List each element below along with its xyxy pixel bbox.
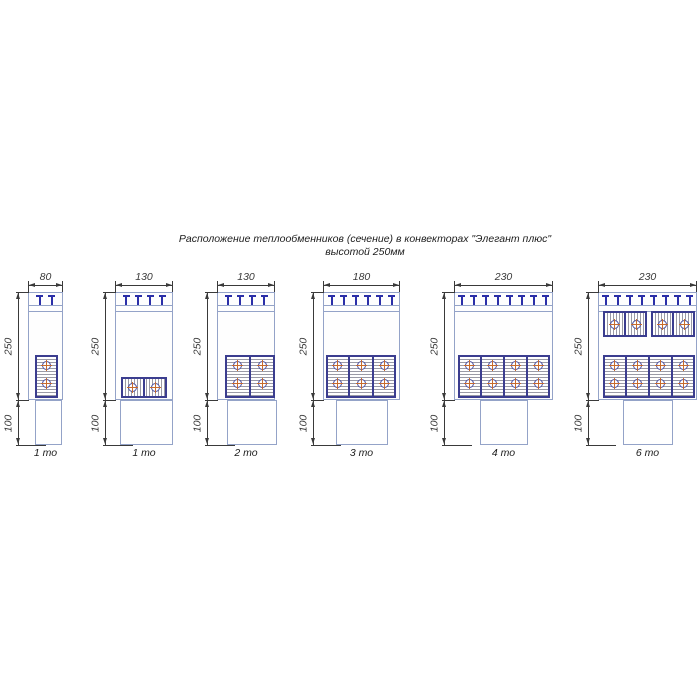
depth-dimension-label: 100 [429,408,440,438]
dim-arrow-up [16,401,20,407]
figure-type-label: 1 то [119,447,169,459]
depth-dimension-label: 100 [3,408,14,438]
grille-clip-icon [251,296,253,305]
lower-duct-box [120,400,173,445]
dim-arrow-left [29,283,35,287]
grille-clip-icon [485,296,487,305]
tube-section-icon [357,379,366,388]
dim-arrow-up [586,401,590,407]
dim-arrow-left [455,283,461,287]
grille-clip-icon [641,296,643,305]
tube-section-icon [534,361,543,370]
width-dimension-line [217,285,275,286]
grille-line [454,305,553,306]
width-dimension-line [598,285,697,286]
dim-arrow-down [442,438,446,444]
grille-clip-icon [367,296,369,305]
dim-extension-line [442,445,472,446]
tube-section-icon [511,361,520,370]
grille-clip-icon [653,296,655,305]
grille-clip-icon [665,296,667,305]
grille-line [598,305,697,306]
tube-section-icon [357,361,366,370]
grille-clip-icon [331,296,333,305]
dim-extension-line [103,445,133,446]
tube-section-icon [333,379,342,388]
tube-section-icon [511,379,520,388]
tube-section-icon [680,320,689,329]
dim-arrow-up [103,401,107,407]
tube-section-icon [128,383,137,392]
width-dimension-label: 180 [342,271,382,283]
dim-arrow-left [324,283,330,287]
dim-arrow-down [311,393,315,399]
exchanger-separator [503,356,505,397]
dim-arrow-down [103,393,107,399]
dim-extension-line [205,445,235,446]
height-dimension-line [444,292,445,445]
tube-section-icon [488,361,497,370]
depth-dimension-label: 100 [298,408,309,438]
dim-arrow-up [205,293,209,299]
dim-arrow-right [393,283,399,287]
dim-arrow-up [442,293,446,299]
dim-arrow-down [16,393,20,399]
height-dimension-label: 250 [192,332,203,362]
grille-clip-icon [355,296,357,305]
grille-line [454,311,553,312]
dim-arrow-down [586,393,590,399]
grille-line [217,311,275,312]
exchanger-separator [143,378,145,397]
tube-section-icon [534,379,543,388]
width-dimension-label: 230 [628,271,668,283]
lower-duct-box [336,400,388,445]
grille-clip-icon [227,296,229,305]
tube-section-icon [633,361,642,370]
depth-dimension-label: 100 [573,408,584,438]
height-dimension-label: 250 [573,332,584,362]
dim-arrow-right [546,283,552,287]
tube-section-icon [42,361,51,370]
width-dimension-line [454,285,553,286]
dim-arrow-right [690,283,696,287]
dim-arrow-left [218,283,224,287]
depth-dimension-label: 100 [192,408,203,438]
width-dimension-label: 80 [26,271,66,283]
height-dimension-label: 250 [90,332,101,362]
grille-line [28,305,63,306]
exchanger-separator [672,312,674,336]
tube-section-icon [610,320,619,329]
dim-arrow-up [205,401,209,407]
dim-arrow-down [311,438,315,444]
dim-arrow-left [599,283,605,287]
figure-type-label: 3 то [337,447,387,459]
height-dimension-label: 250 [429,332,440,362]
grille-clip-icon [51,296,53,305]
dim-extension-line [16,445,46,446]
tube-section-icon [679,379,688,388]
tube-section-icon [233,379,242,388]
tube-section-icon [632,320,641,329]
dim-extension-line [586,445,616,446]
dim-arrow-right [166,283,172,287]
drawing-title-line2: высотой 250мм [30,246,700,258]
grille-clip-icon [509,296,511,305]
dim-arrow-right [268,283,274,287]
grille-line [28,311,63,312]
grille-line [115,311,173,312]
dim-arrow-down [16,438,20,444]
lower-duct-box [623,400,673,445]
grille-clip-icon [497,296,499,305]
dim-arrow-down [205,393,209,399]
tube-section-icon [151,383,160,392]
figure-type-label: 2 то [221,447,271,459]
dim-arrow-down [205,438,209,444]
tube-section-icon [610,361,619,370]
grille-clip-icon [629,296,631,305]
dim-arrow-down [442,393,446,399]
grille-clip-icon [605,296,607,305]
figure-type-label: 6 то [623,447,673,459]
lower-duct-box [35,400,62,445]
dim-arrow-up [16,293,20,299]
grille-clip-icon [473,296,475,305]
grille-clip-icon [137,296,139,305]
exchanger-separator [348,356,350,397]
dim-arrow-down [586,438,590,444]
drawing-canvas: Расположение теплообменников (сечение) в… [0,0,700,700]
grille-clip-icon [391,296,393,305]
drawing-title-line1: Расположение теплообменников (сечение) в… [30,233,700,245]
exchanger-separator [480,356,482,397]
exchanger-separator [249,356,251,397]
grille-clip-icon [689,296,691,305]
tube-section-icon [42,379,51,388]
dim-arrow-right [56,283,62,287]
tube-section-icon [233,361,242,370]
grille-clip-icon [533,296,535,305]
grille-clip-icon [263,296,265,305]
exchanger-separator [526,356,528,397]
height-dimension-line [207,292,208,445]
dim-arrow-up [103,293,107,299]
grille-line [115,305,173,306]
width-dimension-label: 130 [124,271,164,283]
tube-section-icon [656,379,665,388]
lower-duct-box [227,400,277,445]
grille-line [323,311,400,312]
dim-extension-line [311,445,341,446]
width-dimension-label: 130 [226,271,266,283]
height-dimension-label: 250 [3,332,14,362]
height-dimension-line [18,292,19,445]
dim-arrow-up [311,401,315,407]
grille-clip-icon [39,296,41,305]
tube-section-icon [679,361,688,370]
grille-line [217,305,275,306]
grille-clip-icon [239,296,241,305]
tube-section-icon [465,379,474,388]
grille-clip-icon [545,296,547,305]
height-dimension-label: 250 [298,332,309,362]
grille-clip-icon [677,296,679,305]
grille-clip-icon [149,296,151,305]
tube-section-icon [258,379,267,388]
grille-line [323,305,400,306]
exchanger-separator [625,356,627,397]
tube-section-icon [488,379,497,388]
dim-arrow-up [442,401,446,407]
exchanger-separator [671,356,673,397]
width-dimension-label: 230 [484,271,524,283]
tube-section-icon [658,320,667,329]
tube-section-icon [633,379,642,388]
figure-type-label: 1 то [21,447,71,459]
tube-section-icon [333,361,342,370]
width-dimension-line [115,285,173,286]
grille-clip-icon [617,296,619,305]
dim-arrow-up [586,293,590,299]
height-dimension-line [105,292,106,445]
height-dimension-line [313,292,314,445]
exchanger-separator [372,356,374,397]
grille-clip-icon [343,296,345,305]
grille-clip-icon [125,296,127,305]
tube-section-icon [380,361,389,370]
width-dimension-line [323,285,400,286]
grille-clip-icon [461,296,463,305]
lower-duct-box [480,400,528,445]
height-dimension-line [588,292,589,445]
tube-section-icon [465,361,474,370]
tube-section-icon [380,379,389,388]
dim-arrow-up [311,293,315,299]
exchanger-separator [624,312,626,336]
tube-section-icon [610,379,619,388]
grille-clip-icon [521,296,523,305]
grille-clip-icon [161,296,163,305]
dim-arrow-down [103,438,107,444]
tube-section-icon [258,361,267,370]
exchanger-separator [648,356,650,397]
grille-clip-icon [379,296,381,305]
figure-type-label: 4 то [479,447,529,459]
depth-dimension-label: 100 [90,408,101,438]
tube-section-icon [656,361,665,370]
dim-arrow-left [116,283,122,287]
